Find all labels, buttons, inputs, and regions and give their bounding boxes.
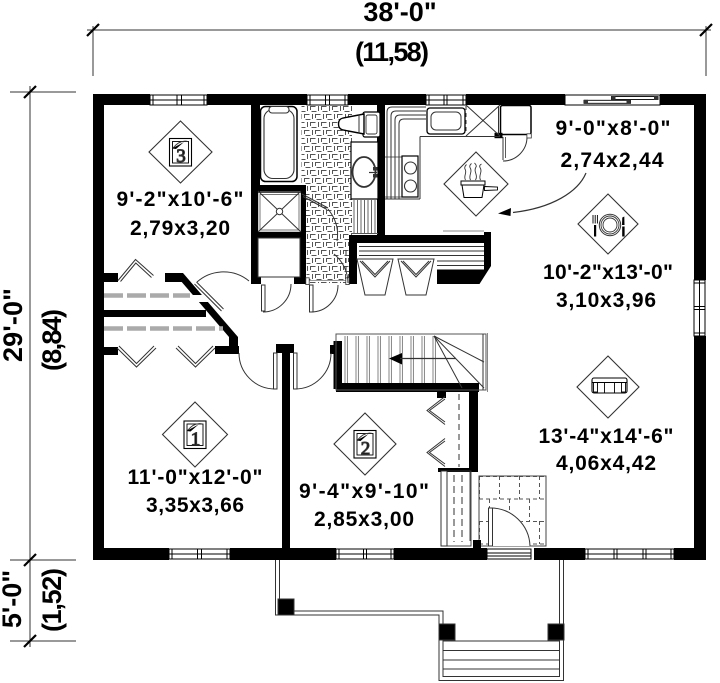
svg-text:(11,58): (11,58) <box>355 37 429 67</box>
svg-text:3: 3 <box>176 146 186 167</box>
svg-text:3,35x3,66: 3,35x3,66 <box>146 494 244 517</box>
svg-text:2,74x2,44: 2,74x2,44 <box>561 149 664 172</box>
svg-text:2: 2 <box>361 439 371 460</box>
svg-text:11'-0"x12'-0": 11'-0"x12'-0" <box>128 466 263 489</box>
svg-text:2,85x3,00: 2,85x3,00 <box>314 508 414 531</box>
svg-text:38'-0": 38'-0" <box>363 0 436 27</box>
svg-text:(1,52): (1,52) <box>37 568 67 632</box>
svg-text:10'-2"x13'-0": 10'-2"x13'-0" <box>543 261 673 284</box>
svg-text:5'-0": 5'-0" <box>0 570 27 628</box>
svg-text:9'-0"x8'-0": 9'-0"x8'-0" <box>556 117 671 140</box>
svg-text:4,06x4,42: 4,06x4,42 <box>556 452 656 475</box>
svg-text:29'-0": 29'-0" <box>0 288 28 362</box>
svg-text:13'-4"x14'-6": 13'-4"x14'-6" <box>539 425 674 448</box>
svg-text:3,10x3,96: 3,10x3,96 <box>556 289 656 312</box>
svg-text:1: 1 <box>191 429 201 450</box>
svg-text:9'-4"x9'-10": 9'-4"x9'-10" <box>299 480 429 503</box>
svg-text:2,79x3,20: 2,79x3,20 <box>130 217 230 240</box>
svg-text:(8,84): (8,84) <box>37 309 67 371</box>
svg-text:9'-2"x10'-6": 9'-2"x10'-6" <box>117 188 244 211</box>
